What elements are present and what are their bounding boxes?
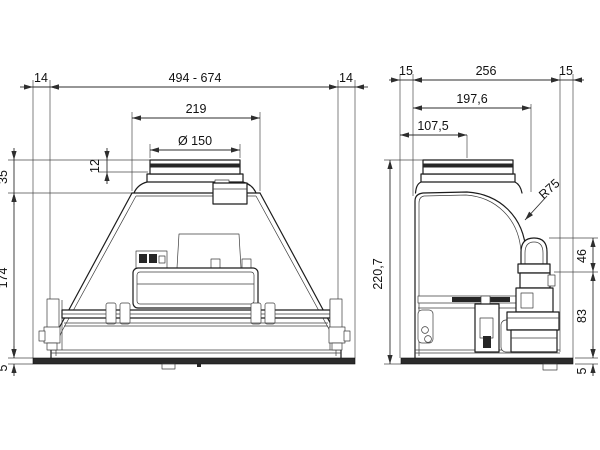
dim-corner-radius: R75 [525, 176, 563, 220]
dim-label: 197,6 [456, 92, 487, 106]
dim-width-range: 494 - 674 [50, 71, 338, 87]
dim-flange-thickness-front: 5 [0, 346, 14, 376]
latch-right [329, 299, 350, 350]
dim-label: 5 [0, 364, 10, 371]
front-extension-lines [8, 80, 355, 364]
junction-box [213, 180, 247, 204]
dim-label: 14 [34, 71, 48, 85]
dim-total-height: 220,7 [371, 160, 390, 364]
dim-label: 494 - 674 [169, 71, 222, 85]
dim-bracket-upper-height: 46 [575, 238, 593, 272]
dim-label: 15 [399, 64, 413, 78]
rear-bracket [507, 238, 559, 352]
duct-collar-side [416, 160, 523, 193]
dim-label: 35 [0, 170, 10, 184]
dim-duct-center-offset: 107,5 [400, 119, 467, 135]
dim-flange-thickness-side: 5 [575, 346, 593, 376]
mounting-flange-side [401, 358, 573, 370]
technical-drawing: 14 494 - 674 14 219 Ø 150 [0, 0, 600, 450]
dim-label: 12 [88, 159, 102, 173]
dim-collar-ring-height: 12 [88, 148, 107, 184]
dim-duct-diameter: Ø 150 [150, 134, 240, 150]
dim-body-height: 174 [0, 193, 14, 358]
latch-left [39, 299, 60, 350]
dim-label: 174 [0, 268, 10, 289]
dim-label: 15 [559, 64, 573, 78]
dim-depth: 256 [413, 64, 560, 80]
dim-label: 219 [186, 102, 207, 116]
dim-bracket-lower-height: 83 [575, 272, 593, 358]
side-view: 15 256 15 197,6 107,5 R75 [371, 64, 598, 376]
dim-flange-overhang-front: 15 [389, 64, 424, 80]
dim-label: 5 [575, 367, 589, 374]
mounting-flange-front [33, 358, 355, 369]
dim-body-depth: 197,6 [413, 92, 531, 108]
front-view: 14 494 - 674 14 219 Ø 150 [0, 71, 368, 376]
dim-label: 46 [575, 249, 589, 263]
dim-top-plate-width: 219 [132, 102, 260, 118]
dim-label: R75 [536, 176, 562, 202]
dim-label: 220,7 [371, 258, 385, 289]
dim-label: 14 [339, 71, 353, 85]
dim-label: 256 [476, 64, 497, 78]
dim-flange-overhang-left: 14 [20, 71, 63, 87]
dim-collar-height-above-top: 35 [0, 148, 14, 205]
drawing-canvas: 14 494 - 674 14 219 Ø 150 [0, 0, 600, 450]
dim-flange-overhang-rear: 15 [549, 64, 584, 80]
dim-flange-overhang-right: 14 [325, 71, 368, 87]
dim-label: 107,5 [417, 119, 448, 133]
motor-housing [133, 234, 258, 308]
dim-label: 83 [575, 309, 589, 323]
dim-label: Ø 150 [178, 134, 212, 148]
